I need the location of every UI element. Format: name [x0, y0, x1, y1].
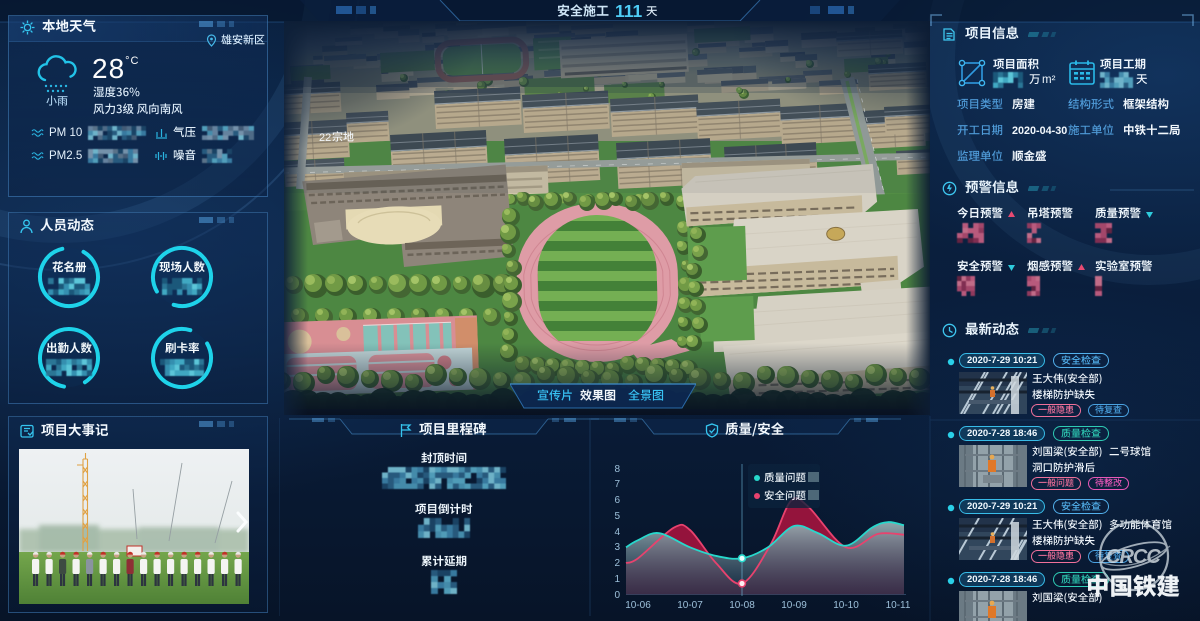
- svg-text:10-06: 10-06: [625, 600, 651, 611]
- svg-text:22: 22: [319, 132, 331, 144]
- svg-text:10-08: 10-08: [729, 600, 755, 611]
- svg-text:1: 1: [614, 574, 620, 585]
- svg-text:10-10: 10-10: [833, 600, 859, 611]
- svg-text:0: 0: [614, 590, 620, 601]
- svg-text:CRCC: CRCC: [1106, 546, 1161, 568]
- svg-text:4: 4: [614, 527, 620, 538]
- svg-text:8: 8: [614, 464, 620, 475]
- svg-text:7: 7: [614, 479, 620, 490]
- svg-text:3: 3: [614, 542, 620, 553]
- svg-text:10-11: 10-11: [886, 600, 911, 611]
- svg-text:2: 2: [614, 558, 620, 569]
- svg-text:6: 6: [614, 495, 620, 506]
- svg-text:5: 5: [614, 511, 620, 522]
- svg-text:10-07: 10-07: [677, 600, 703, 611]
- svg-text:10-09: 10-09: [781, 600, 807, 611]
